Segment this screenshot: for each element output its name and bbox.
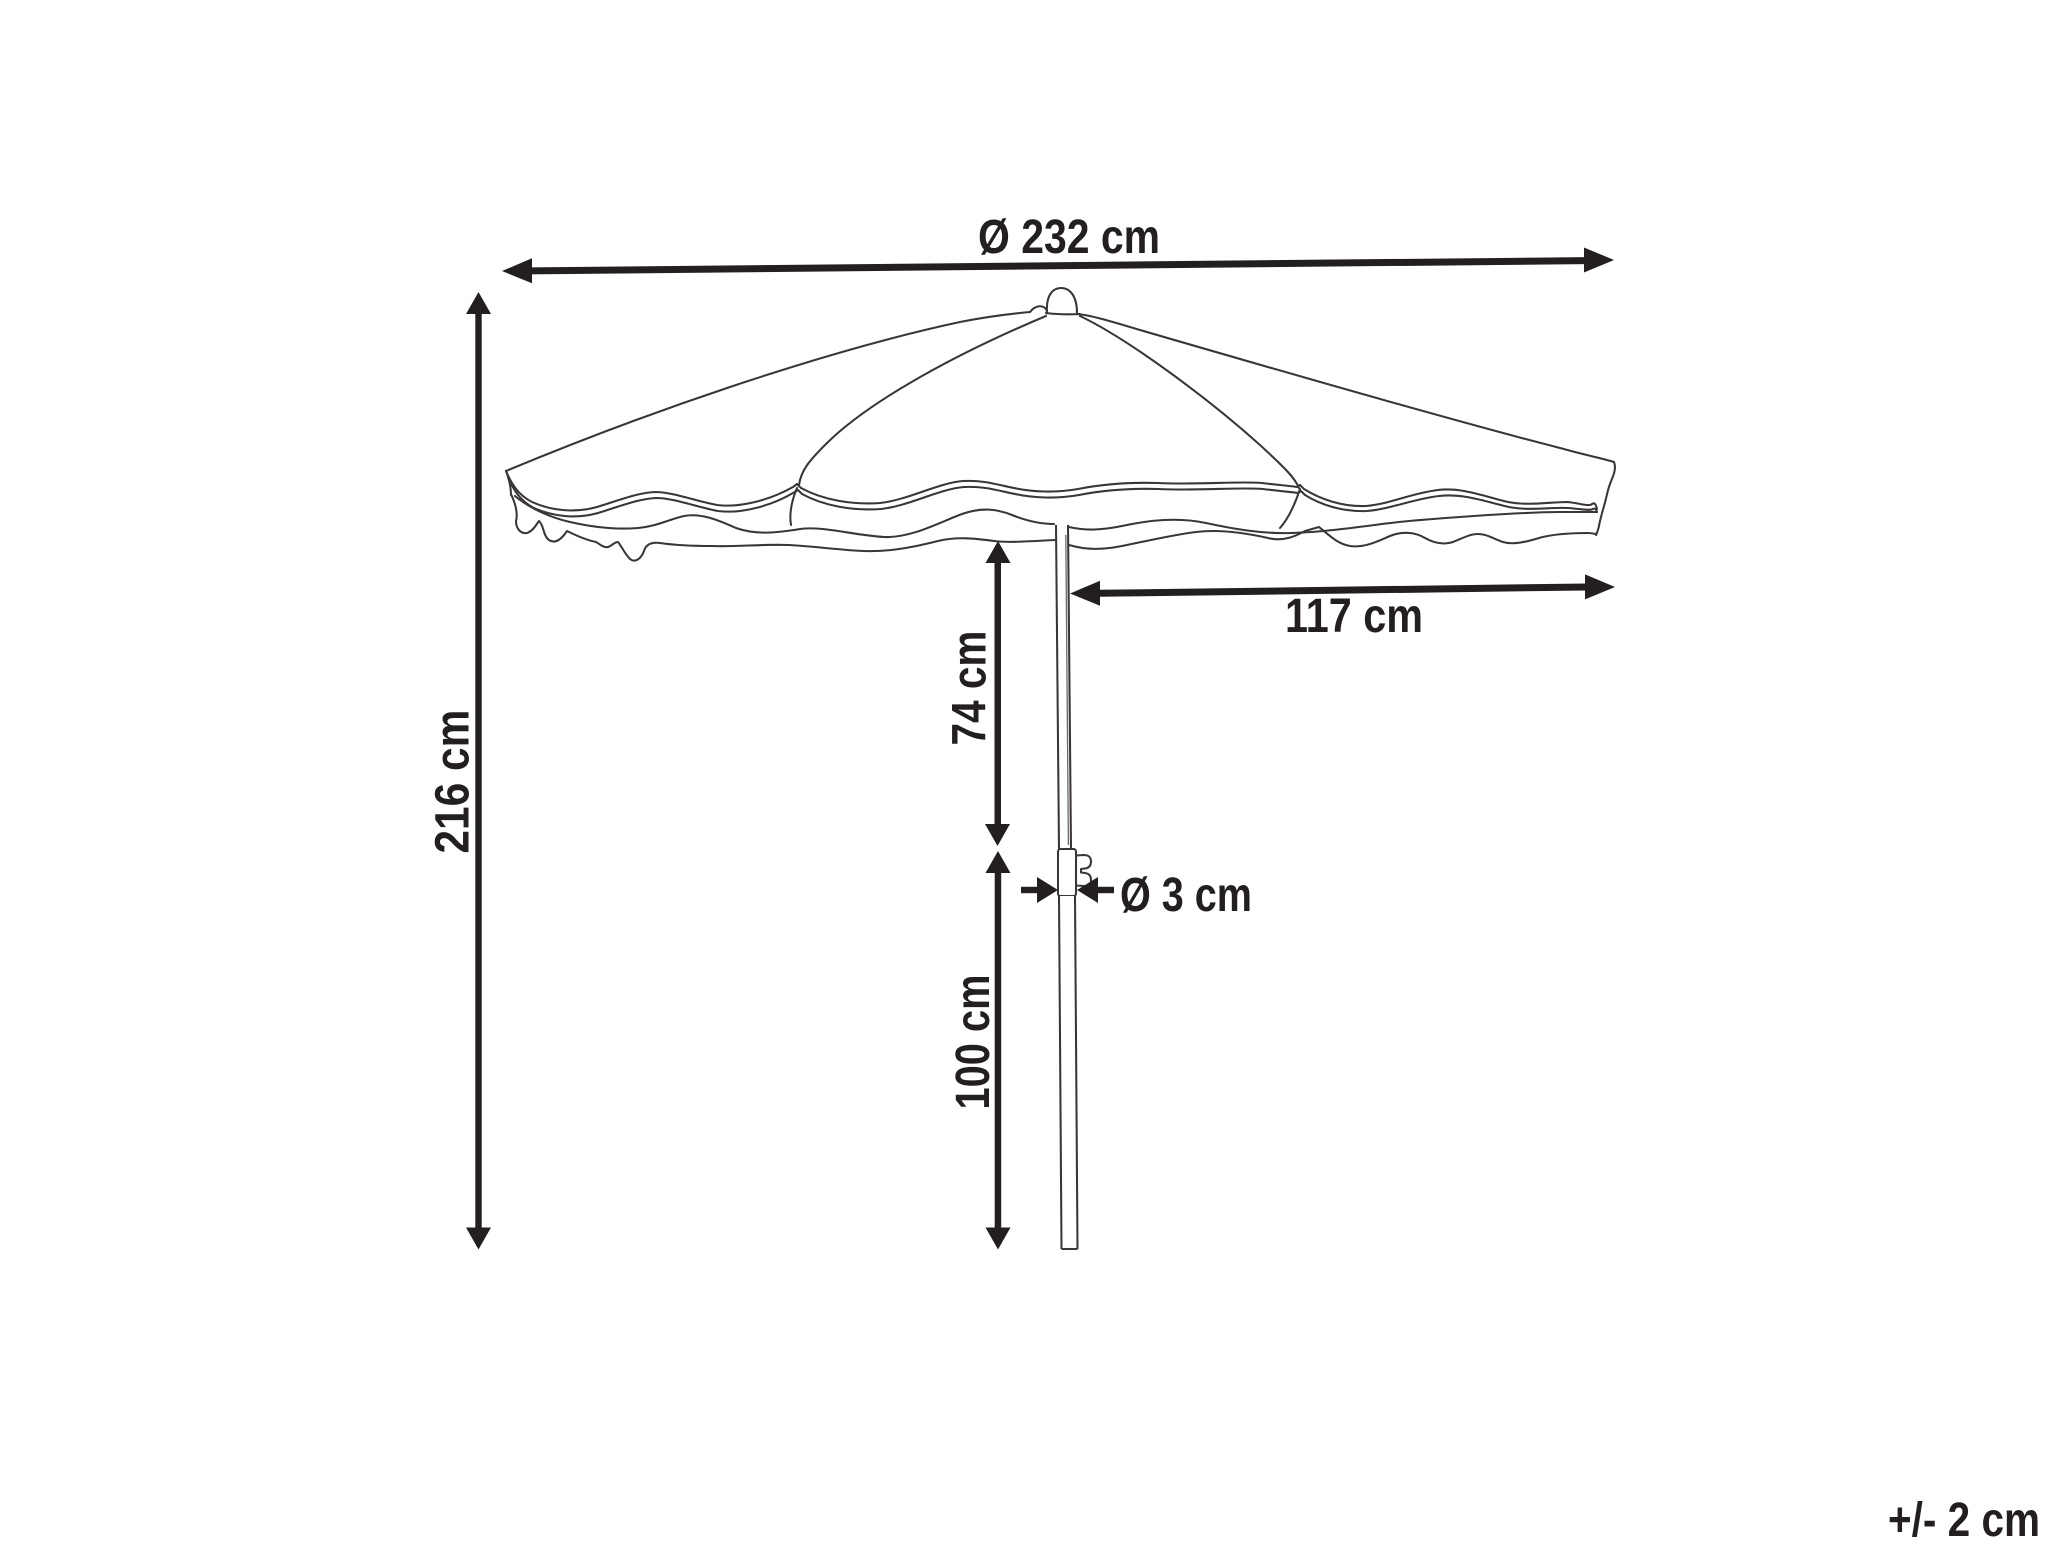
svg-text:Ø 3 cm: Ø 3 cm [1120, 869, 1252, 922]
svg-text:+/- 2 cm: +/- 2 cm [1888, 1494, 2040, 1547]
svg-text:216 cm: 216 cm [427, 710, 480, 854]
svg-text:117 cm: 117 cm [1285, 590, 1423, 643]
svg-text:Ø 232 cm: Ø 232 cm [978, 211, 1160, 264]
svg-text:100 cm: 100 cm [947, 975, 1000, 1110]
svg-text:74 cm: 74 cm [944, 631, 997, 746]
